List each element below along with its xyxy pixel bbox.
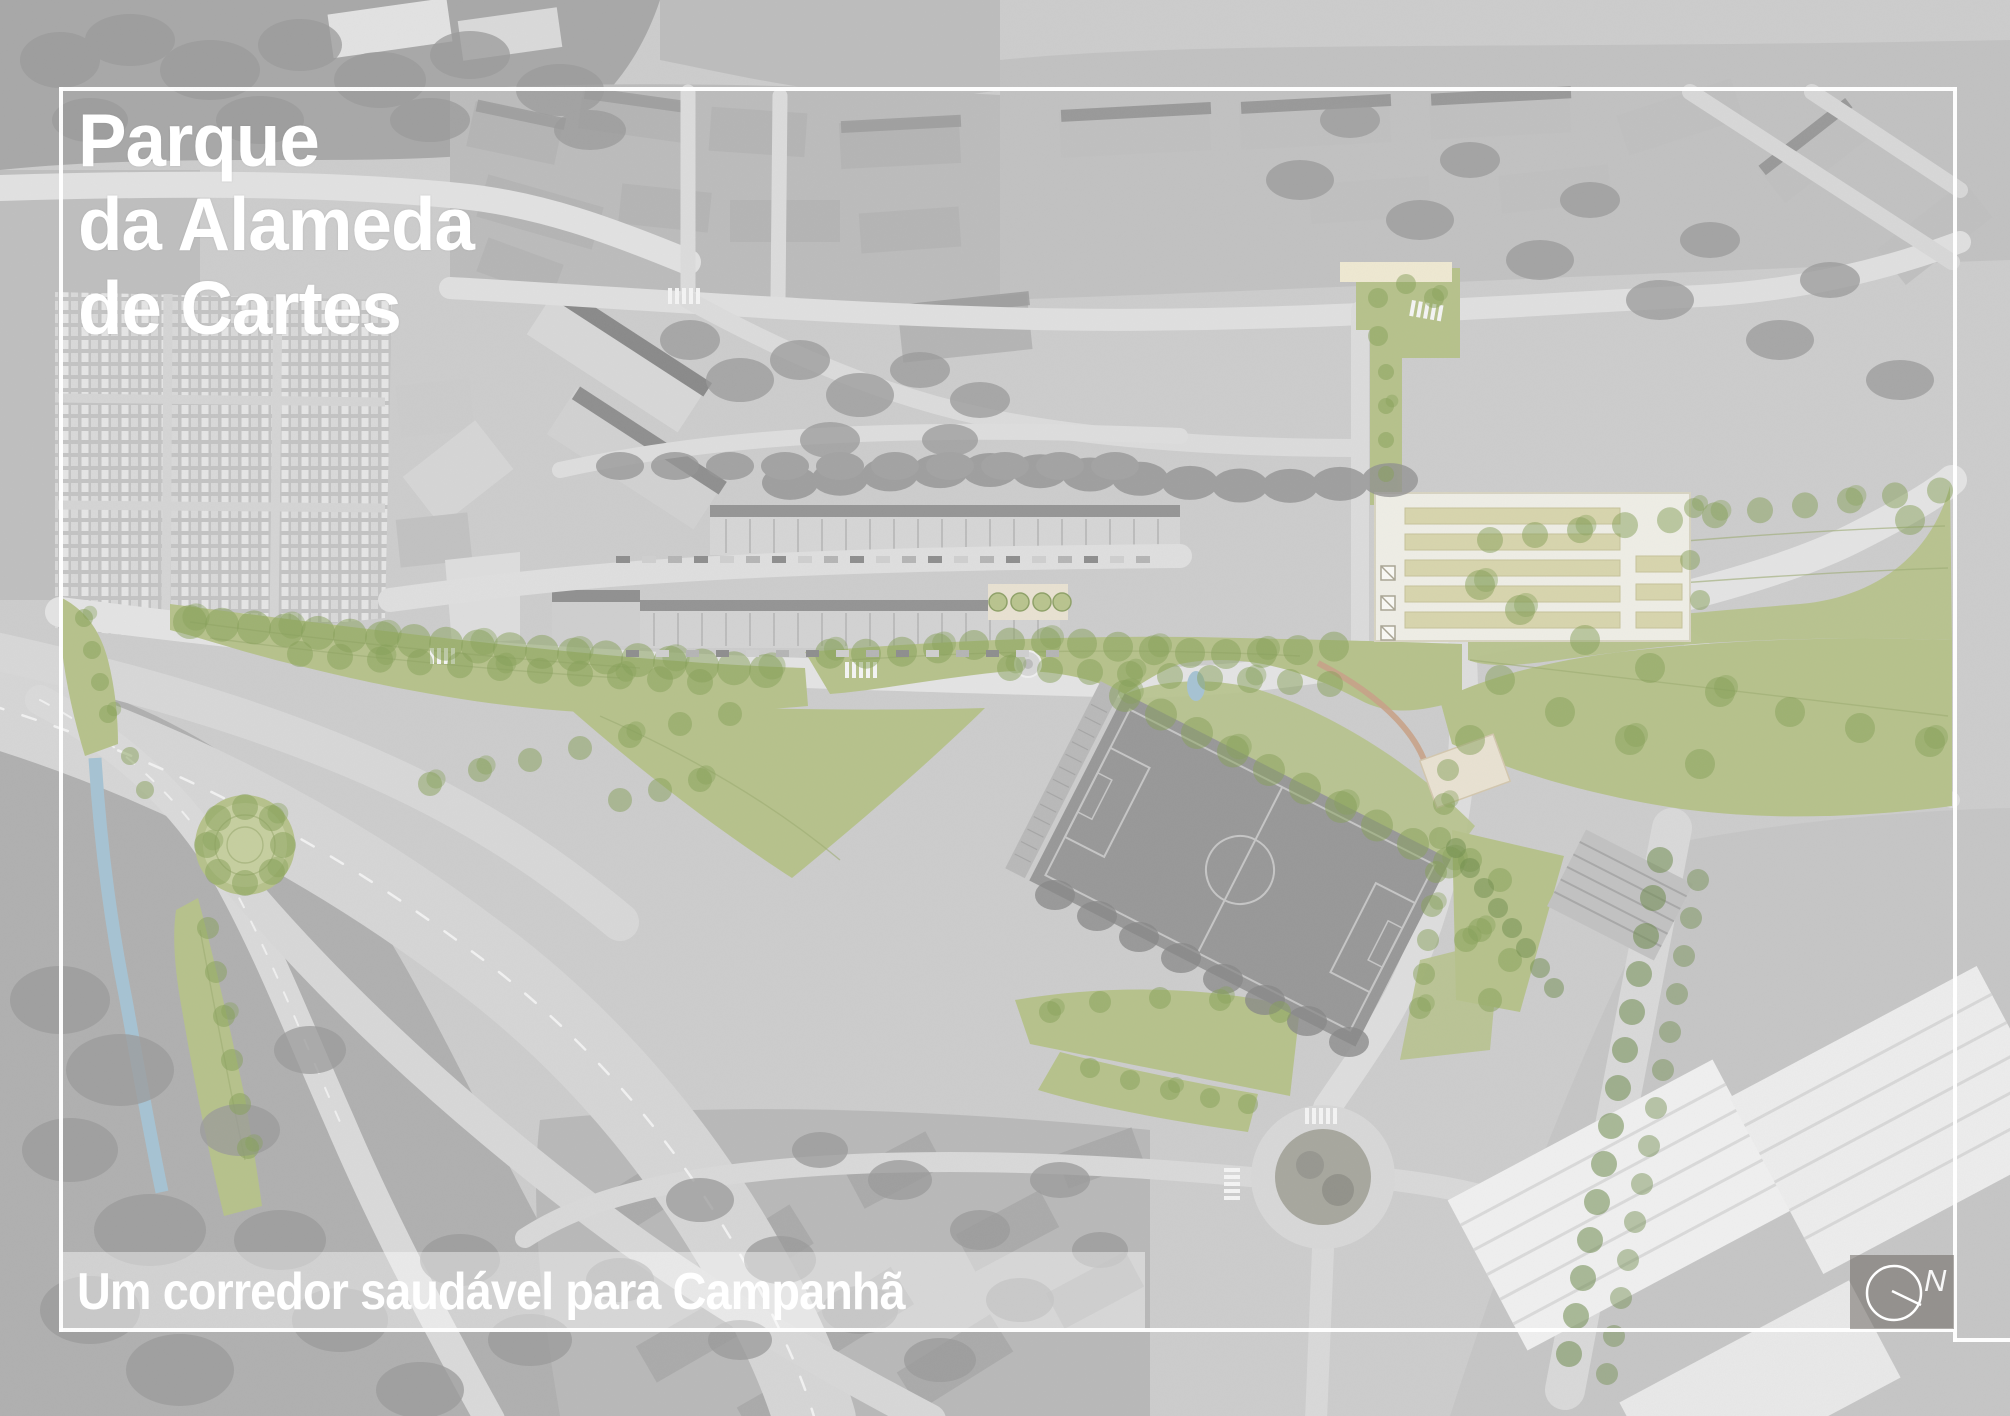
frame-left [59,87,63,1332]
frame-bottom-right-step [1953,1338,2010,1342]
title-line-1: Parque [78,98,474,182]
compass-needle [1892,1291,1921,1305]
title-line-3: de Cartes [78,266,474,350]
subtitle: Um corredor saudável para Campanhã [77,1260,905,1324]
north-label: N [1924,1263,1946,1299]
page-title: Parque da Alameda de Cartes [78,98,474,350]
frame-right [1953,87,1957,1342]
frame-top [59,87,1957,91]
masterplan-poster: Parque da Alameda de Cartes Um corredor … [0,0,2010,1416]
north-arrow: N [1850,1255,1954,1329]
title-line-2: da Alameda [78,182,474,266]
